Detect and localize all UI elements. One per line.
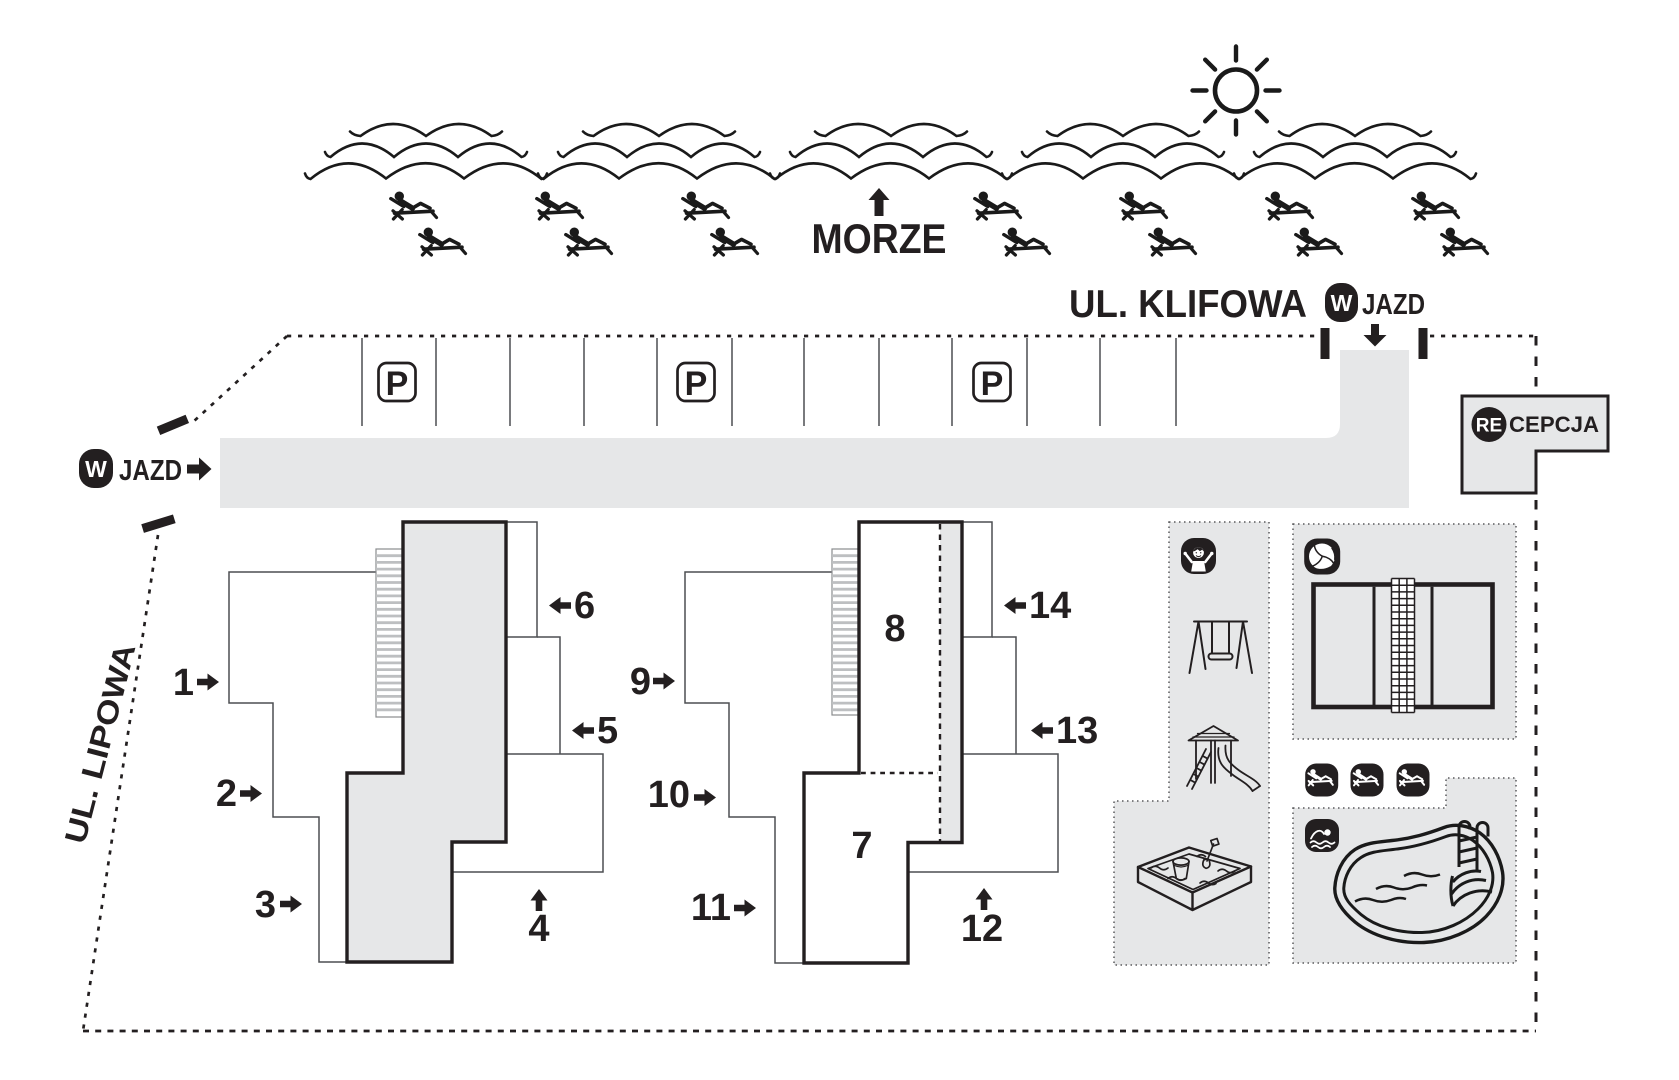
svg-text:14: 14 (1029, 585, 1071, 627)
svg-text:12: 12 (961, 908, 1003, 950)
svg-text:JAZD: JAZD (1362, 289, 1425, 321)
svg-text:6: 6 (574, 585, 595, 627)
svg-text:5: 5 (597, 710, 618, 752)
svg-text:13: 13 (1056, 710, 1098, 752)
svg-text:3: 3 (255, 884, 276, 926)
svg-text:P: P (981, 365, 1004, 403)
svg-text:RE: RE (1476, 416, 1502, 437)
svg-text:UL. KLIFOWA: UL. KLIFOWA (1069, 283, 1307, 326)
svg-text:1: 1 (173, 662, 194, 704)
svg-text:CEPCJA: CEPCJA (1509, 412, 1599, 437)
svg-text:2: 2 (216, 773, 237, 815)
svg-text:8: 8 (884, 608, 905, 650)
svg-text:11: 11 (691, 887, 731, 929)
svg-text:JAZD: JAZD (119, 455, 182, 487)
svg-text:P: P (685, 365, 708, 403)
svg-text:4: 4 (528, 908, 549, 950)
svg-text:10: 10 (648, 774, 690, 816)
svg-text:7: 7 (851, 825, 872, 867)
svg-text:W: W (85, 456, 107, 482)
svg-text:MORZE: MORZE (812, 215, 947, 262)
svg-text:9: 9 (630, 661, 651, 703)
svg-text:UL. LIPOWA: UL. LIPOWA (59, 640, 142, 847)
svg-text:W: W (1331, 290, 1353, 316)
svg-text:P: P (386, 365, 409, 403)
